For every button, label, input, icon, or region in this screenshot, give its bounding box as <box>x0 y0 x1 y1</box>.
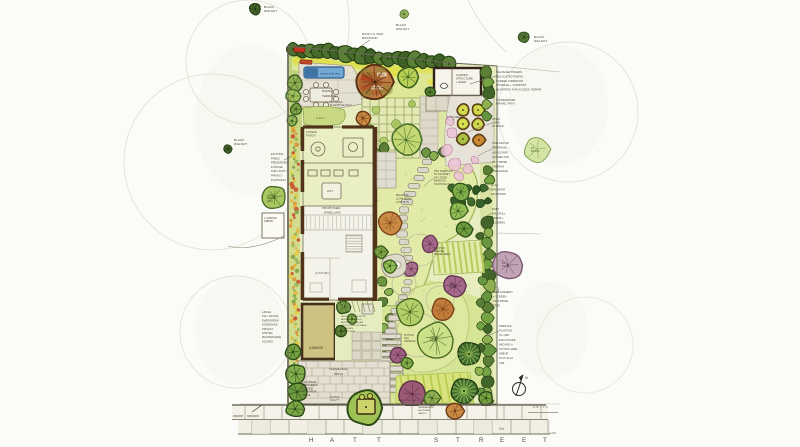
svg-text:S: S <box>434 437 438 444</box>
svg-text:TERRACE: TERRACE <box>322 94 337 98</box>
svg-text:E: E <box>500 437 504 444</box>
svg-text:DRIVE: DRIVE <box>334 372 343 376</box>
svg-text:USE: USE <box>499 362 505 365</box>
svg-text:FAVORITES: FAVORITES <box>491 193 506 196</box>
svg-text:HOT: HOT <box>327 189 333 193</box>
svg-text:GARDEN: GARDEN <box>267 197 277 200</box>
svg-text:LILAC: LILAC <box>491 184 499 187</box>
svg-text:PLUM: PLUM <box>502 265 509 268</box>
svg-text:FALL/FULL: FALL/FULL <box>492 213 506 216</box>
svg-text:RECYCLING STORAGE: RECYCLING STORAGE <box>341 324 367 327</box>
svg-text:TREES: TREES <box>271 157 280 160</box>
svg-text:REPLACEMENT: REPLACEMENT <box>493 291 513 294</box>
svg-text:PRESERVED: PRESERVED <box>271 162 287 165</box>
svg-text:LAWN: LAWN <box>492 121 500 125</box>
svg-text:RUBY: RUBY <box>492 208 500 211</box>
svg-text:PLANTING: PLANTING <box>499 330 512 333</box>
svg-text:H: H <box>309 437 313 444</box>
svg-text:WALNUT: WALNUT <box>234 142 247 146</box>
svg-text:GRAVEL PATH: GRAVEL PATH <box>496 102 515 106</box>
svg-text:SALVAGED: SALVAGED <box>330 101 343 104</box>
svg-text:GARDEN: GARDEN <box>434 250 445 253</box>
svg-text:DRIVEWAY: DRIVEWAY <box>418 409 431 412</box>
svg-text:OF 2 PRIME: OF 2 PRIME <box>492 161 507 164</box>
svg-text:AROUND A: AROUND A <box>499 343 513 346</box>
svg-text:IS LUSH: IS LUSH <box>499 334 510 337</box>
svg-text:PLANTS: PLANTS <box>316 117 326 120</box>
svg-text:PERMEABLE: PERMEABLE <box>329 367 348 371</box>
svg-text:PRIVACY: PRIVACY <box>262 328 274 331</box>
svg-text:CHALLENGE: CHALLENGE <box>492 170 508 173</box>
svg-text:ACCESS: ACCESS <box>262 340 273 343</box>
svg-text:SCREENING: SCREENING <box>262 324 278 327</box>
svg-text:BETWEEN GARDEN: BETWEEN GARDEN <box>341 321 364 324</box>
svg-text:PEAR: PEAR <box>430 339 437 342</box>
svg-text:N: N <box>525 376 528 380</box>
svg-text:STORAGE + COMPOST: STORAGE + COMPOST <box>496 83 527 87</box>
svg-text:ORNAMENTAL: ORNAMENTAL <box>418 406 435 409</box>
svg-text:QUARTERS FOR ACCESS, REPAIR: QUARTERS FOR ACCESS, REPAIR <box>496 88 541 92</box>
svg-text:(LOW MOW): (LOW MOW) <box>396 197 412 201</box>
svg-text:PLANTINGS: PLANTINGS <box>271 179 286 182</box>
svg-text:LOW MTN: LOW MTN <box>396 200 409 204</box>
svg-text:FOLLY?: FOLLY? <box>330 400 340 402</box>
svg-text:BOXWOOD: BOXWOOD <box>362 36 378 40</box>
svg-text:PERENNIAL: PERENNIAL <box>492 147 508 150</box>
svg-text:RAISED BEDS: RAISED BEDS <box>434 253 451 256</box>
svg-text:MAPLE: MAPLE <box>531 150 540 153</box>
svg-text:DINING: DINING <box>322 89 333 93</box>
svg-text:EVERGREEN: EVERGREEN <box>262 319 279 322</box>
svg-text:GARAGE: GARAGE <box>309 346 323 350</box>
svg-text:FLOWERS: FLOWERS <box>492 222 505 225</box>
svg-text:SITTING: SITTING <box>330 397 340 399</box>
svg-text:AT REAR: AT REAR <box>492 124 504 128</box>
svg-text:PORCH: PORCH <box>306 134 316 137</box>
svg-text:+ SHED: + SHED <box>456 80 466 84</box>
svg-text:MUDROOMS: MUDROOMS <box>341 331 355 333</box>
svg-text:OF A PRIME: OF A PRIME <box>493 300 508 303</box>
svg-text:MEADOW: MEADOW <box>396 193 409 197</box>
svg-text:SCREEN FIREWOOD: SCREEN FIREWOOD <box>496 79 523 83</box>
svg-text:CHERISH: CHERISH <box>492 166 504 169</box>
svg-text:ARBOR: ARBOR <box>264 220 273 223</box>
svg-text:MAINTENANCE: MAINTENANCE <box>262 336 282 339</box>
svg-text:SEDUM GREEN ROOF: SEDUM GREEN ROOF <box>341 316 366 318</box>
svg-text:TERRACE: TERRACE <box>404 340 416 343</box>
svg-text:TREE: TREE <box>267 201 274 203</box>
svg-text:EXISTING: EXISTING <box>271 153 283 156</box>
svg-text:EXIST: EXIST <box>378 75 385 77</box>
svg-text:SALVAGED PAVERS: SALVAGED PAVERS <box>496 70 522 74</box>
svg-text:STRUCTURE: STRUCTURE <box>456 77 473 81</box>
svg-text:+ GARDEN: + GARDEN <box>341 327 353 330</box>
svg-text:1/16" = 1'-0": 1/16" = 1'-0" <box>533 405 548 409</box>
svg-text:ENCLOSURE: ENCLOSURE <box>499 339 516 342</box>
svg-text:FOR LIGHT /: FOR LIGHT / <box>271 170 287 173</box>
svg-text:COLOR +: COLOR + <box>492 217 504 220</box>
svg-text:-1425: -1425 <box>549 431 557 435</box>
svg-text:SPACE: SPACE <box>302 394 311 397</box>
svg-text:FRAGRANT: FRAGRANT <box>491 189 506 192</box>
svg-text:ARBOR: ARBOR <box>499 353 508 356</box>
svg-text:WATER FEATURE: WATER FEATURE <box>320 73 340 76</box>
svg-text:& PRUNE: & PRUNE <box>271 166 283 169</box>
svg-text:LANDSCAPE: LANDSCAPE <box>492 151 508 154</box>
svg-text:KITCHEN: KITCHEN <box>434 248 445 250</box>
svg-text:T: T <box>456 437 460 444</box>
svg-text:BLUESTONE PAVG: BLUESTONE PAVG <box>330 104 352 107</box>
svg-text:T: T <box>543 437 547 444</box>
svg-text:WALNUT: WALNUT <box>534 39 547 43</box>
svg-text:PRESERVE: PRESERVE <box>372 88 384 90</box>
svg-text:STORMWATER: STORMWATER <box>496 98 515 102</box>
svg-text:SHADE: SHADE <box>267 194 275 197</box>
svg-text:LARGE: LARGE <box>262 311 271 314</box>
svg-text:R: R <box>479 437 484 444</box>
svg-text:SITTING: SITTING <box>404 335 414 337</box>
svg-text:3/4: 3/4 <box>499 427 504 431</box>
svg-text:TALL NATIVE: TALL NATIVE <box>262 315 279 318</box>
svg-text:T: T <box>353 437 357 444</box>
svg-text:TREE: TREE <box>493 305 500 308</box>
svg-text:WALNUT: WALNUT <box>264 9 277 13</box>
svg-text:PRIVACY: PRIVACY <box>271 175 283 178</box>
svg-text:GARDEN: GARDEN <box>456 73 468 77</box>
svg-text:WALNUT: WALNUT <box>396 27 409 31</box>
svg-text:DWELLING: DWELLING <box>324 211 341 215</box>
svg-text:RELOCATED PAVING: RELOCATED PAVING <box>496 74 523 78</box>
svg-text:POLLINATOR: POLLINATOR <box>492 142 509 145</box>
svg-text:ARBOR + TRELLIS: ARBOR + TRELLIS <box>341 318 362 321</box>
svg-text:GATES?: GATES? <box>418 412 428 415</box>
svg-text:(2 STORY): (2 STORY) <box>315 271 330 275</box>
svg-text:TEA: TEA <box>404 337 409 340</box>
svg-text:T: T <box>377 437 381 444</box>
svg-text:PROPOSED: PROPOSED <box>322 206 341 210</box>
svg-text:PLANTING PATH: PLANTING PATH <box>434 183 454 186</box>
svg-text:+ SCREEN: + SCREEN <box>493 296 506 299</box>
svg-text:PLUS PLAY: PLUS PLAY <box>499 357 514 360</box>
svg-text:E: E <box>522 437 526 444</box>
svg-text:SITTING AREA: SITTING AREA <box>499 348 518 351</box>
svg-text:CONNECTOR: CONNECTOR <box>492 156 509 159</box>
svg-text:LIMITED: LIMITED <box>262 332 273 335</box>
svg-text:PLUM: PLUM <box>449 286 456 289</box>
svg-text:TERRACE: TERRACE <box>499 325 512 328</box>
svg-text:NEAT & DEFINED EDGES: NEAT & DEFINED EDGES <box>398 399 427 402</box>
svg-text:OPEN: OPEN <box>492 117 500 121</box>
